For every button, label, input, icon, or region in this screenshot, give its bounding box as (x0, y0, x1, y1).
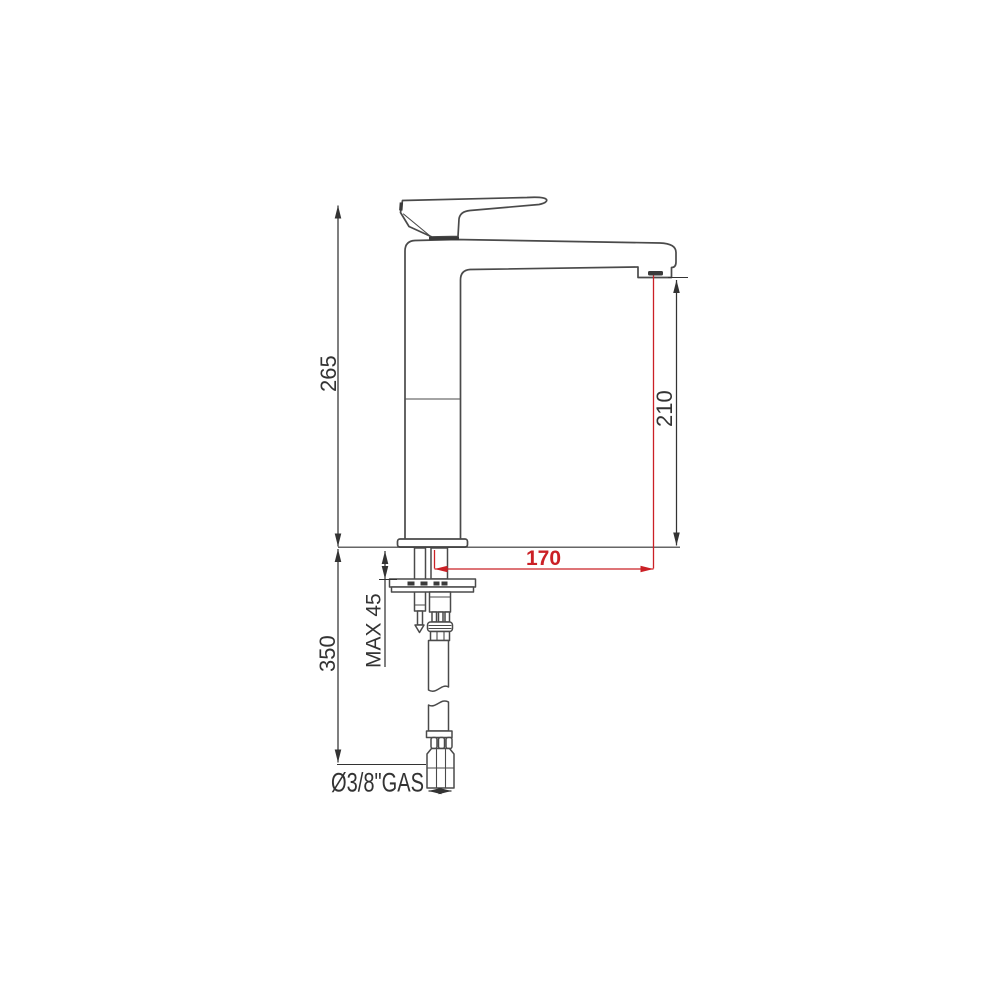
faucet-dimension-drawing: 265 350 MAX 45 210 170 Ø3/8"GAS (0, 0, 1000, 1000)
ribbed-fitting (432, 612, 450, 622)
stud-tip (415, 625, 424, 633)
hose-thread-teeth (431, 738, 452, 749)
dimension-spout-reach: 170 (435, 276, 654, 571)
hose-upper-section (429, 641, 449, 692)
technical-drawing-page: 265 350 MAX 45 210 170 Ø3/8"GAS (0, 0, 1000, 1000)
plate-thread-marks (408, 582, 448, 586)
faucet-handle (401, 197, 547, 238)
dimension-max-deck: MAX 45 (363, 551, 398, 668)
hose-end-collar (427, 731, 453, 738)
dimension-total-height: 265 (316, 206, 341, 547)
clamp-plate-top (390, 579, 476, 587)
faucet-body-and-spout (405, 240, 676, 547)
stud-lower-rod (418, 611, 423, 625)
dim-spout-reach-label: 170 (526, 547, 561, 570)
dim-total-height-label: 265 (316, 355, 341, 392)
hose-ferrule (431, 632, 450, 641)
valve-block (430, 592, 451, 612)
dim-spout-height-label: 210 (652, 390, 677, 427)
aerator-icon (648, 271, 663, 276)
dim-under-counter-label: 350 (315, 635, 340, 672)
dimension-spout-height: 210 (652, 278, 688, 546)
lever-outline (401, 197, 547, 237)
dim-connection-label: Ø3/8"GAS (331, 768, 424, 798)
mounting-hardware (390, 548, 476, 641)
supply-pipe (431, 548, 448, 579)
hose-lower-section (429, 701, 449, 731)
lever-edge-shadow (401, 203, 402, 211)
dim-max-deck-label: MAX 45 (363, 593, 386, 668)
body-spout-outline (405, 240, 676, 547)
crimp-collar (428, 622, 453, 632)
flexible-hose (427, 641, 455, 789)
base-flange (398, 539, 468, 547)
